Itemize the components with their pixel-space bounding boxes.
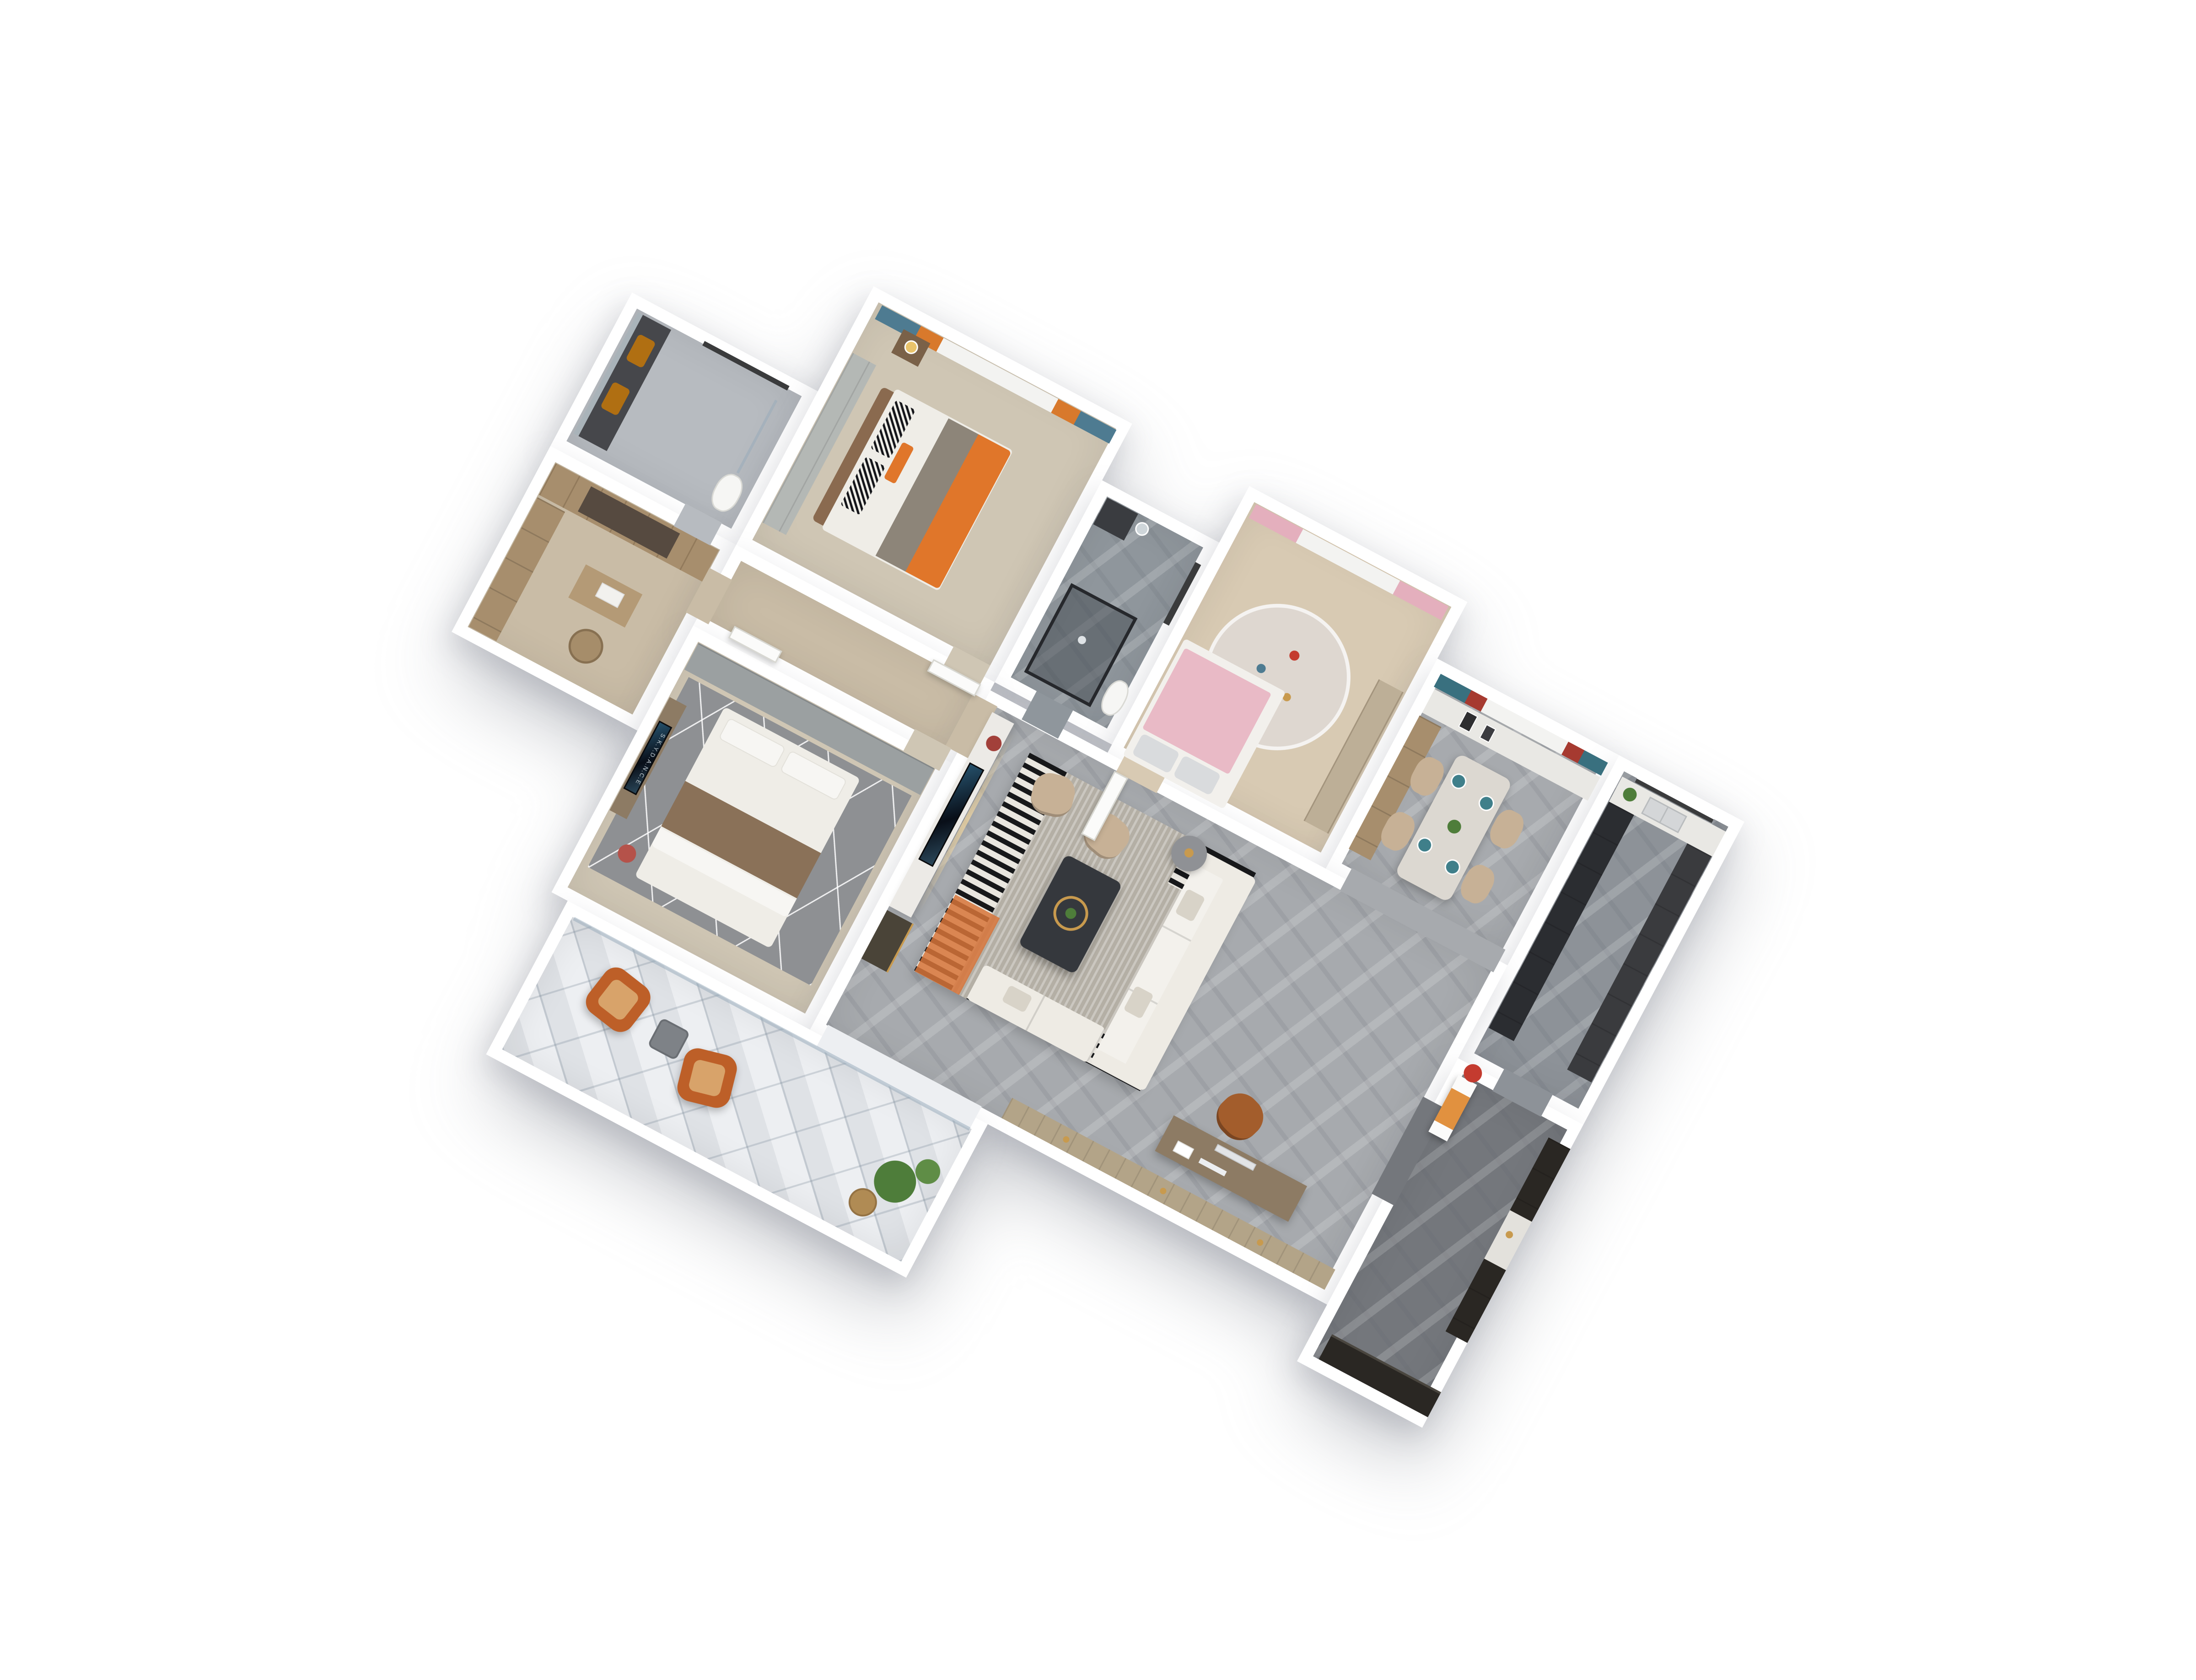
apartment-3d-floor-plan: S.K.Y.D.A.N.C.E (258, 151, 1787, 1529)
floor-plan-scene: S.K.Y.D.A.N.C.E (0, 0, 2196, 1680)
